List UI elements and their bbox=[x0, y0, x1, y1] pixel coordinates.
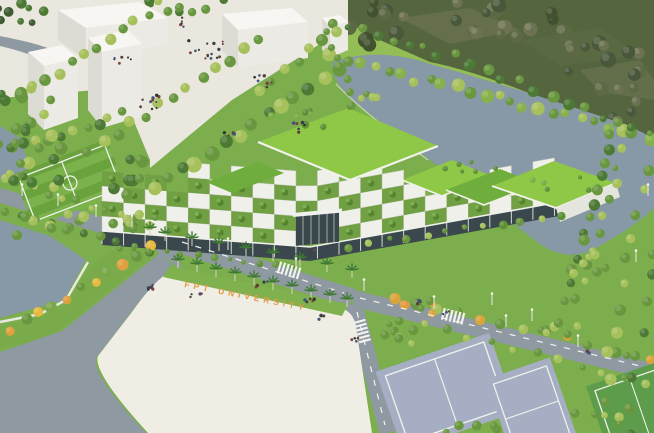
entrance-glass bbox=[296, 212, 339, 246]
architectural-render: FPT UNIVERSITY bbox=[0, 0, 654, 433]
scene-svg: FPT UNIVERSITY bbox=[0, 0, 654, 433]
